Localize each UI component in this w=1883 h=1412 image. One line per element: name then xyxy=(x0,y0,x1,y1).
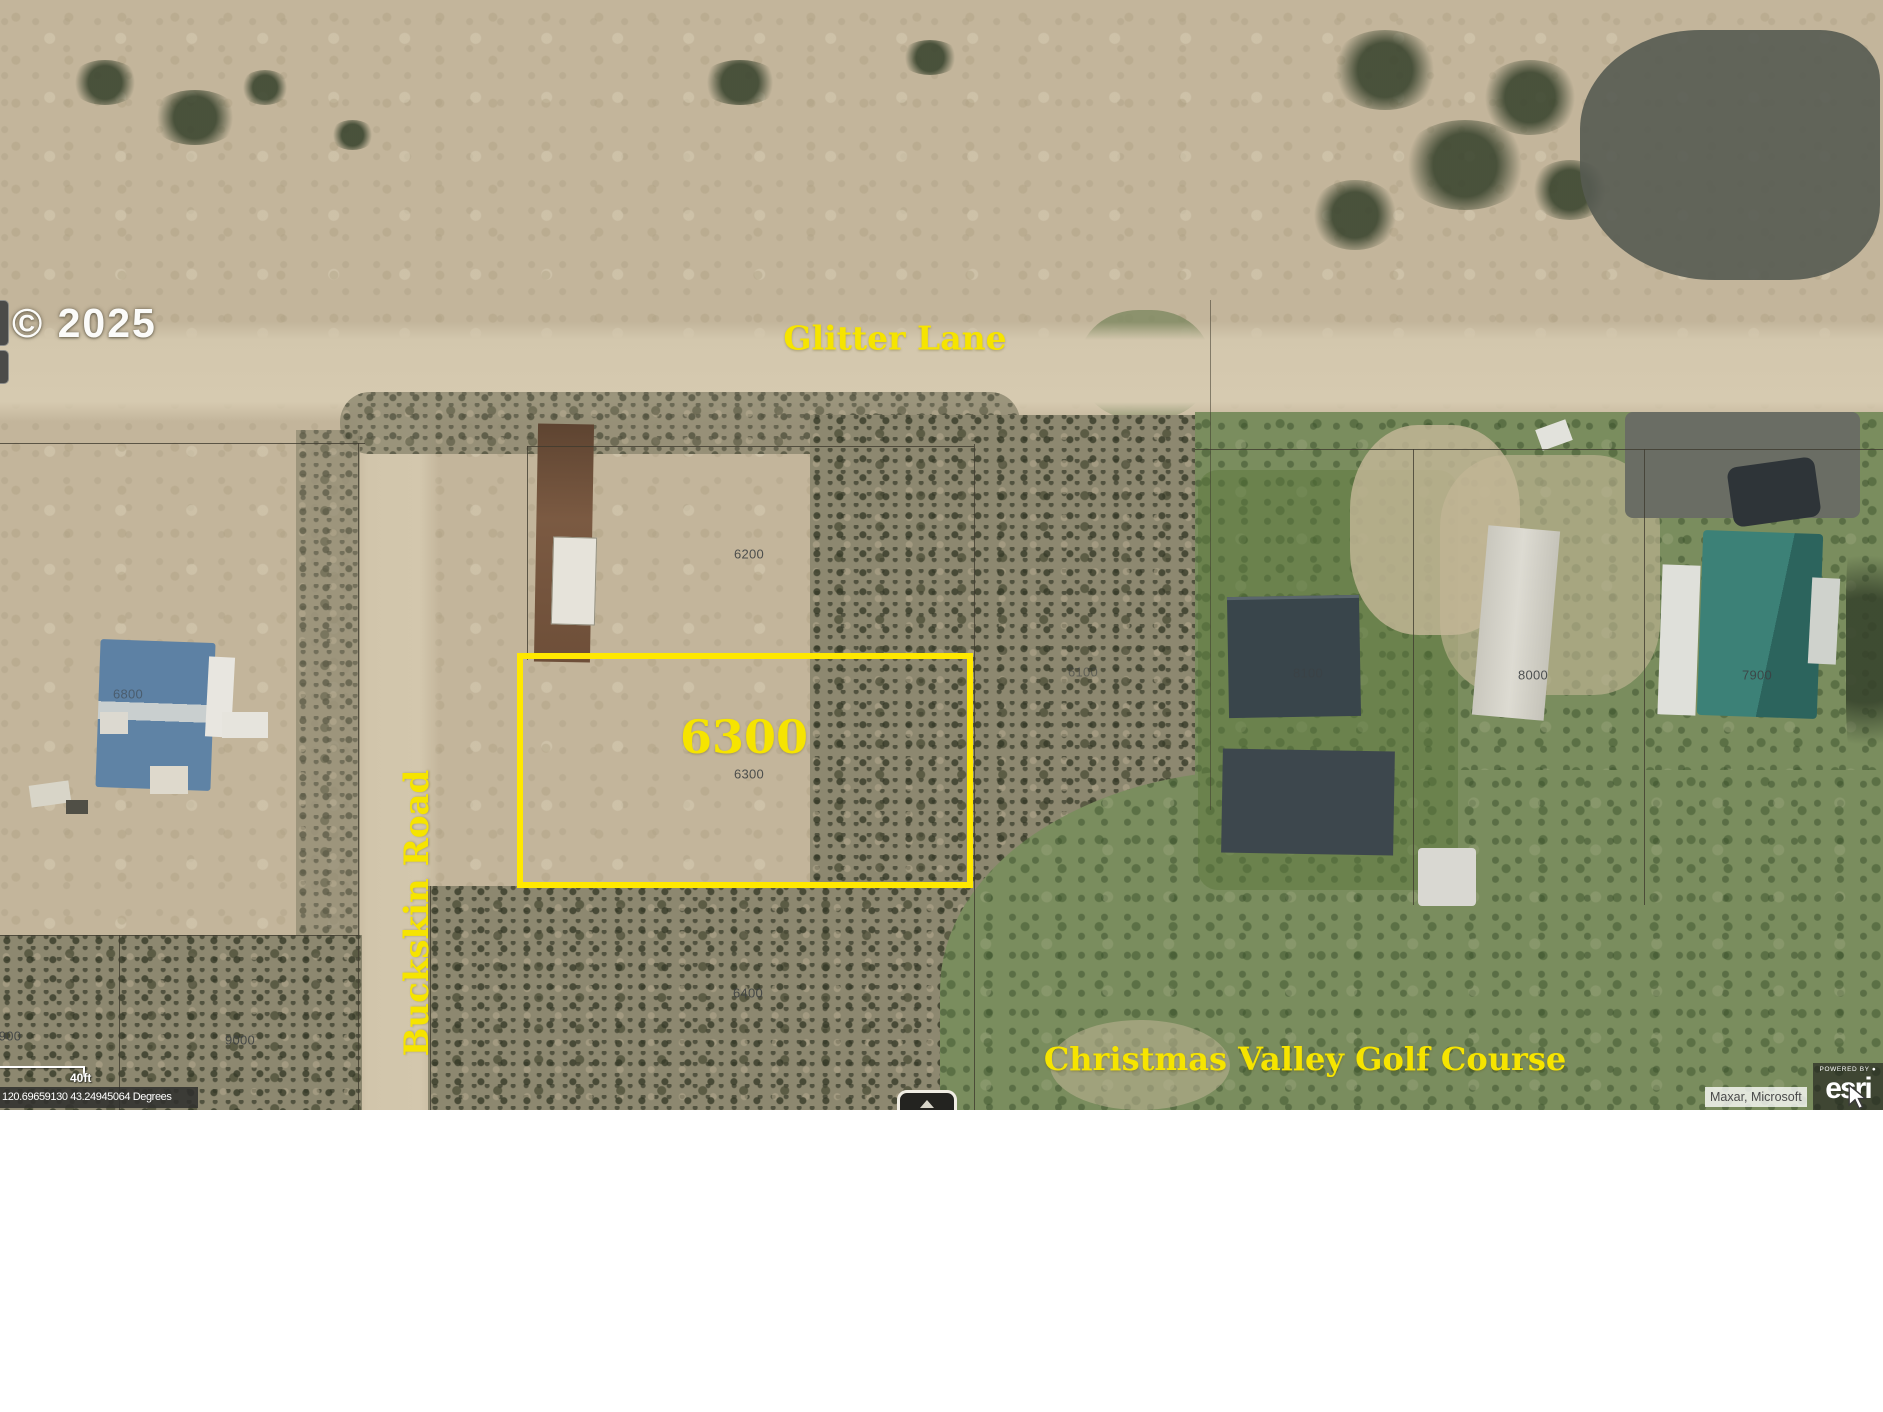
satellite-map-canvas[interactable]: Glitter Lane Buckskin Road 6300 Christma… xyxy=(0,0,1883,1110)
scale-bar-label: 40ft xyxy=(70,1071,91,1085)
parcel-label-6800: 6800 xyxy=(113,687,143,702)
copyright-text: © 2025 xyxy=(12,300,157,347)
parcel-label-6300: 6300 xyxy=(734,767,764,782)
parcel-label-6400: 6400 xyxy=(733,986,763,1001)
parcel-labels-layer: 620063006400610081008000790068009009000 xyxy=(0,0,1883,1110)
mouse-cursor-icon xyxy=(1848,1084,1876,1110)
coordinate-readout: 120.69659130 43.24945064 Degrees xyxy=(0,1087,198,1108)
parcel-label-900: 900 xyxy=(0,1029,21,1044)
parcel-label-8000: 8000 xyxy=(1518,668,1548,683)
parcel-label-9000: 9000 xyxy=(225,1033,255,1048)
chevron-up-icon xyxy=(920,1100,934,1108)
parcel-label-6100: 6100 xyxy=(1068,665,1098,680)
app-window: Glitter Lane Buckskin Road 6300 Christma… xyxy=(0,0,1883,1412)
scale-bar-line xyxy=(0,1066,85,1068)
parcel-label-6200: 6200 xyxy=(734,547,764,562)
parcel-label-7900: 7900 xyxy=(1742,668,1772,683)
attribution-sources: Maxar, Microsoft xyxy=(1705,1087,1807,1107)
edge-widget-button[interactable] xyxy=(0,300,9,346)
collapse-panel-button[interactable] xyxy=(897,1090,957,1110)
parcel-label-8100: 8100 xyxy=(1293,666,1323,681)
edge-widget-button[interactable] xyxy=(0,350,9,384)
